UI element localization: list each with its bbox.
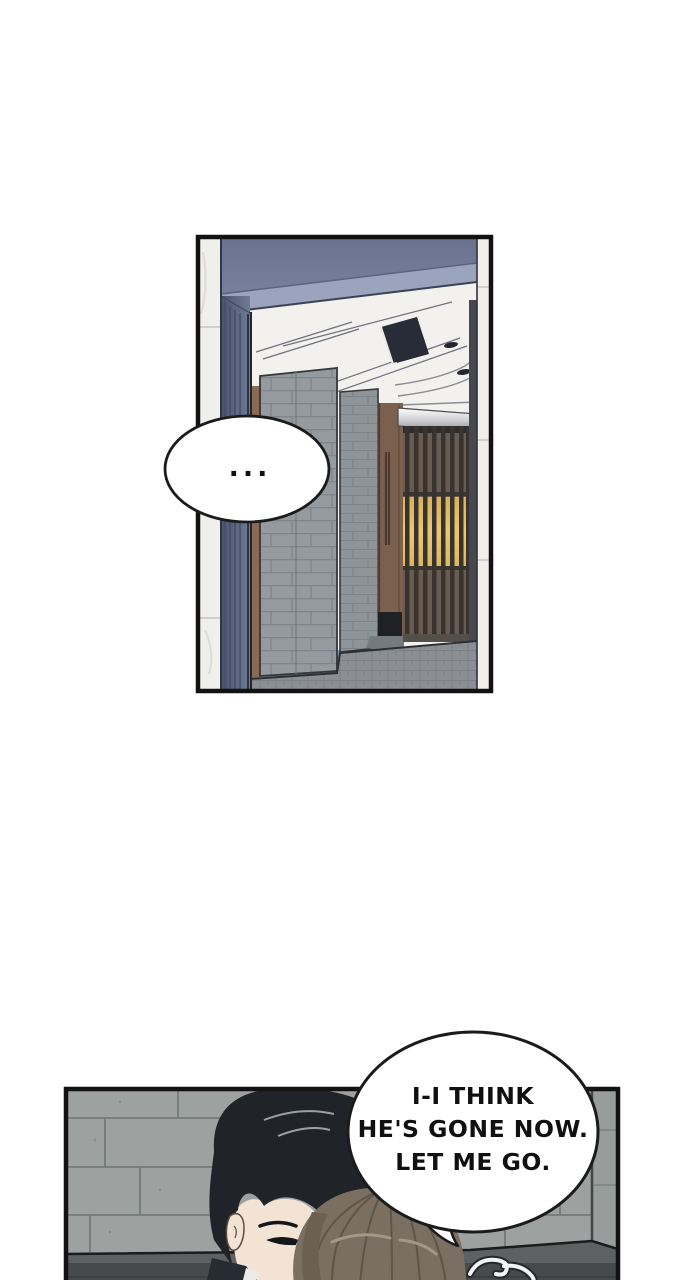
speech-line-2: HE'S GONE NOW. xyxy=(358,1115,589,1143)
panel-1: ... xyxy=(165,237,491,691)
webtoon-page-canvas: ... xyxy=(0,0,690,1280)
speech-dots-text: ... xyxy=(229,452,272,483)
speech-line-3: LET ME GO. xyxy=(395,1148,551,1176)
speech-line-1: I-I THINK xyxy=(412,1082,535,1110)
panel-1-speech-bubble: ... xyxy=(165,416,329,522)
webtoon-page: ... xyxy=(0,0,690,1280)
brick-partition-far xyxy=(340,389,378,652)
right-door-jamb xyxy=(469,300,477,650)
door-step-recess xyxy=(378,612,402,636)
panel-2: I-I THINK HE'S GONE NOW. LET ME GO. xyxy=(66,1032,618,1280)
screen-sill xyxy=(403,634,469,642)
marble-wall-right xyxy=(477,237,490,691)
slatted-screen xyxy=(403,426,470,642)
brick-partition-near xyxy=(251,368,337,682)
